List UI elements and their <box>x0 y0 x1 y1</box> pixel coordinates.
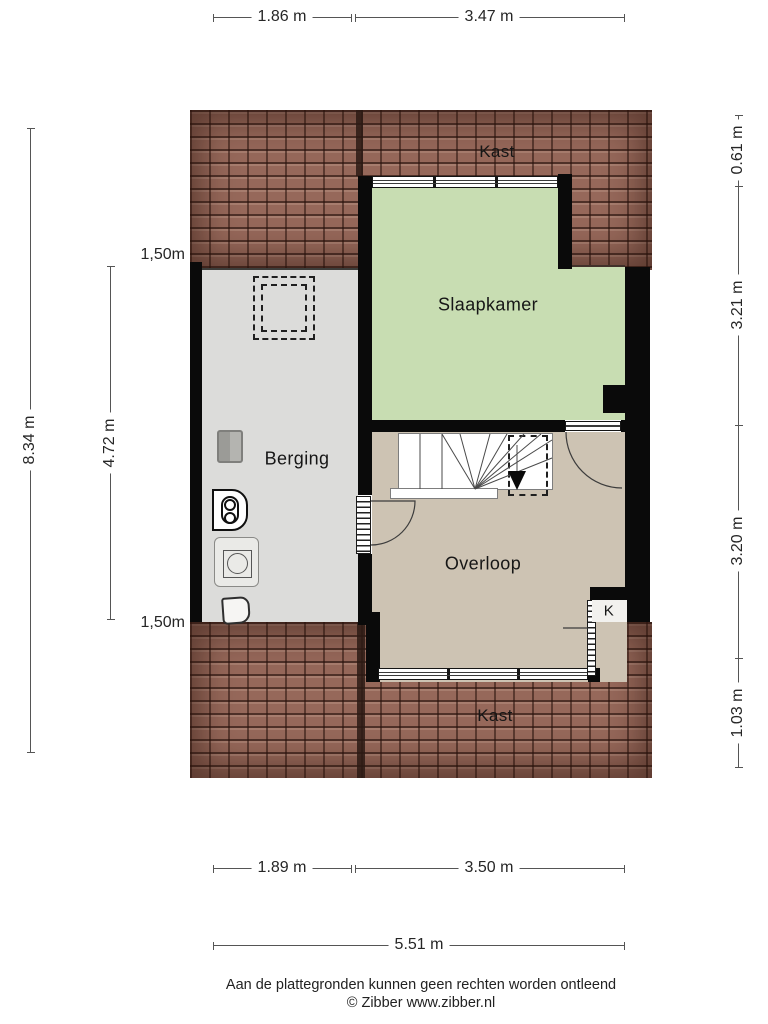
window-slaapkamer <box>372 176 558 188</box>
roof-seam-bottom <box>357 622 365 778</box>
utility-cabinet <box>217 430 243 463</box>
chimney-block <box>603 385 627 413</box>
roof-seam-top <box>356 110 363 176</box>
boiler-icon <box>221 496 239 524</box>
headroom-label-top: 1,50m <box>141 246 185 264</box>
footer-disclaimer: Aan de plattegronden kunnen geen rechten… <box>226 977 616 993</box>
boiler-unit <box>212 489 248 531</box>
door-slaapkamer-leaf <box>565 421 621 431</box>
room-label-k: K <box>604 603 614 620</box>
washer-drum-icon <box>227 553 248 574</box>
room-label-berging: Berging <box>265 449 330 470</box>
dim-label-right-3: 3.20 m <box>729 511 747 572</box>
dim-label-bottom-total: 5.51 m <box>389 936 450 954</box>
wall-right-outer <box>625 267 650 622</box>
window-mullion <box>495 177 498 187</box>
small-basin <box>221 596 251 625</box>
dim-label-right-2: 3.21 m <box>729 275 747 336</box>
skylight-dashed-inner <box>261 284 307 332</box>
dim-label-top-left: 1.86 m <box>252 8 313 26</box>
window-overloop <box>378 668 588 680</box>
dim-line-right <box>738 115 739 768</box>
dim-label-bottom-left: 1.89 m <box>252 859 313 877</box>
floorplan-page: Kast Slaapkamer Berging Overloop K Kast … <box>0 0 768 1024</box>
door-berging-leaf <box>356 496 371 554</box>
window-mullion <box>517 669 520 679</box>
wall-above-k <box>590 587 627 600</box>
footer-credit: © Zibber www.zibber.nl <box>347 995 496 1011</box>
dim-label-bottom-right: 3.50 m <box>459 859 520 877</box>
dim-label-left-inner: 4.72 m <box>101 413 119 474</box>
washing-machine <box>214 537 259 587</box>
stairs-landing-edge <box>390 488 498 499</box>
wall-berging-slaapkamer <box>358 176 372 495</box>
room-label-slaapkamer: Slaapkamer <box>438 295 538 316</box>
window-mullion <box>433 177 436 187</box>
boiler-dial-icon <box>224 499 236 511</box>
wall-left-outer <box>190 262 202 622</box>
wall-slaapkamer-overloop <box>372 420 565 432</box>
headroom-label-bottom: 1,50m <box>141 614 185 632</box>
room-label-kast-bottom: Kast <box>477 706 513 726</box>
dim-label-top-right: 3.47 m <box>459 8 520 26</box>
boiler-dial-icon <box>224 512 236 524</box>
wall-slaapkamer-right-upper <box>558 174 572 269</box>
washer-door-icon <box>223 550 252 578</box>
dim-label-left-total: 8.34 m <box>21 410 39 471</box>
room-label-overloop: Overloop <box>445 554 521 575</box>
window-mullion <box>447 669 450 679</box>
dim-label-right-4: 1.03 m <box>729 683 747 744</box>
room-label-kast-top: Kast <box>479 142 515 162</box>
dim-label-right-1: 0.61 m <box>729 120 747 181</box>
stairs-headroom-dashed <box>508 435 548 496</box>
